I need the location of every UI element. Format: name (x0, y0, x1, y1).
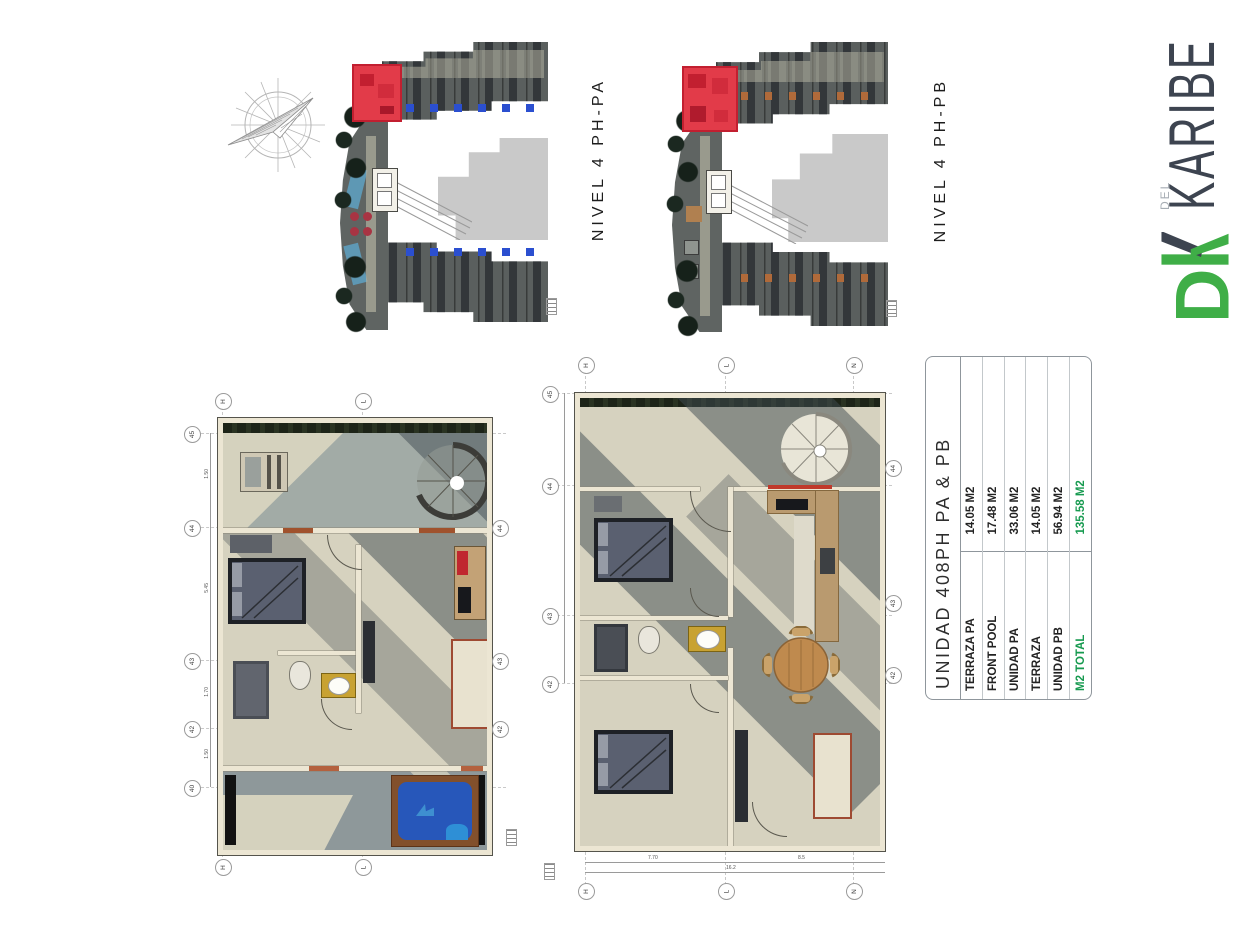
fridge (820, 548, 835, 574)
row-label: UNIDAD PA (1005, 552, 1026, 699)
terrace-pool (223, 771, 487, 850)
grid-bubble: 45 (542, 386, 559, 403)
logo-brand: KARIBE (1159, 38, 1224, 210)
grid-bubble: 42 (885, 667, 902, 684)
row-value: 56.94 M2 (1048, 357, 1069, 552)
bed (594, 730, 673, 794)
grid-bubble: L (355, 859, 372, 876)
terrace-pa (223, 433, 487, 528)
highlighted-unit (352, 64, 402, 122)
dim-label: 5.45 (204, 583, 210, 593)
site-plan-pa (340, 42, 568, 336)
table-row: TERRAZA PA 14.05 M2 (961, 357, 983, 699)
cooktop (776, 499, 808, 510)
scale-stamp (546, 298, 557, 315)
unit-pb-building (575, 393, 885, 851)
row-label: M2 TOTAL (1070, 552, 1091, 699)
door-swing (752, 802, 787, 837)
door-swing (321, 699, 352, 730)
dim-label: 7.70 (648, 855, 658, 861)
site-plan-pb-label: NIVEL 4 PH-PB (932, 78, 950, 242)
door-swing (327, 535, 362, 570)
ramp-lines (728, 174, 808, 244)
table-row: UNIDAD PA 33.06 M2 (1005, 357, 1027, 699)
bench (451, 639, 487, 729)
sofa (813, 733, 852, 819)
area-table-wrap: UNIDAD 408PH PA & PB TERRAZA PA 14.05 M2… (925, 358, 1090, 700)
row-value: 14.05 M2 (1026, 357, 1047, 552)
site-plan-pa-label: NIVEL 4 PH-PA (590, 78, 608, 241)
dim-label: 1.50 (204, 469, 210, 479)
grid-bubble: 44 (492, 520, 509, 537)
row-label: FRONT POOL (983, 552, 1004, 699)
elevator-core (372, 168, 398, 212)
closet (230, 535, 272, 553)
scale-stamp (886, 300, 897, 317)
compass-icon (218, 70, 333, 185)
ramp-lines (392, 170, 472, 240)
row-value: 135.58 M2 (1070, 357, 1091, 552)
grid-bubble: 40 (184, 780, 201, 797)
door-sill (283, 528, 313, 533)
row-value: 14.05 M2 (961, 357, 982, 552)
dim-label: 1.50 (204, 749, 210, 759)
planter-strip (225, 775, 236, 845)
bed (594, 518, 673, 582)
dim-label: 1.70 (204, 687, 210, 697)
tv-panel (363, 621, 375, 683)
grid-bubble: H (215, 393, 232, 410)
vanity (688, 626, 726, 652)
site-plan-pb (672, 42, 908, 336)
grid-bubble: L (355, 393, 372, 410)
row-label: TERRAZA (1026, 552, 1047, 699)
wardrobe (455, 547, 485, 619)
door-swing (690, 684, 719, 713)
grid-bubble: 44 (184, 520, 201, 537)
counter-inner (794, 516, 814, 634)
grid-bubble: 43 (492, 653, 509, 670)
grid-bubble: 43 (542, 608, 559, 625)
grid-bubble: L (718, 357, 735, 374)
accent-dots-top (724, 92, 882, 100)
toilet (289, 661, 311, 690)
grid-bubble: 44 (542, 478, 559, 495)
grid-bubble: H (215, 859, 232, 876)
dining-table (762, 626, 840, 704)
toilet (638, 626, 660, 654)
row-label: TERRAZA PA (961, 552, 982, 699)
table-row: FRONT POOL 17.48 M2 (983, 357, 1005, 699)
floor-plan-pb: H L N H L N 45 44 43 42 44 43 42 (530, 355, 902, 900)
table-row: TERRAZA 14.05 M2 (1026, 357, 1048, 699)
row-value: 17.48 M2 (983, 357, 1004, 552)
planter-band (223, 423, 487, 433)
grid-bubble: 42 (492, 721, 509, 738)
scale-stamp (544, 863, 555, 880)
pool-water (398, 782, 472, 840)
grid-bubble: 44 (885, 460, 902, 477)
door-sill (461, 766, 483, 771)
bed (228, 558, 306, 624)
pool-dots-top (390, 104, 540, 112)
grid-bubble: N (846, 883, 863, 900)
grid-bubble: H (578, 357, 595, 374)
tv-console (735, 730, 748, 822)
spiral-stair-icon (411, 439, 487, 523)
table-row-total: M2 TOTAL 135.58 M2 (1070, 357, 1091, 699)
grid-bubble: 43 (184, 653, 201, 670)
unit-pa-interior (223, 533, 487, 766)
spiral-stair-icon (776, 409, 856, 489)
architectural-sheet: NIVEL 4 PH-PA NIVEL 4 PH-PB (0, 0, 1260, 945)
brand-logo: D DEL KARIBE (1146, 33, 1238, 318)
unit-pa-building (218, 418, 492, 855)
row-value: 33.06 M2 (1005, 357, 1026, 552)
grid-bubble: H (578, 883, 595, 900)
highlighted-unit (682, 66, 738, 132)
row-label: UNIDAD PB (1048, 552, 1069, 699)
table-row: UNIDAD PB 56.94 M2 (1048, 357, 1070, 699)
bath-cabinet (594, 624, 628, 672)
grid-bubble: 42 (184, 721, 201, 738)
dim-label: 16.2 (726, 865, 736, 871)
door-sill (419, 528, 455, 533)
accent-dots-bottom (724, 274, 882, 282)
dim-label: 8.5 (798, 855, 805, 861)
grid-bubble: N (846, 357, 863, 374)
trees (664, 106, 704, 346)
floor-plan-pa: 1.50 5.45 1.70 1.50 H L H L 45 44 43 42 … (180, 393, 510, 875)
grid-bubble: 43 (885, 595, 902, 612)
svg-text:D: D (1161, 269, 1238, 318)
pool-dots-bottom (390, 248, 540, 256)
pool-deck (391, 775, 479, 847)
nightstand (594, 496, 622, 512)
area-table-title: UNIDAD 408PH PA & PB (926, 357, 961, 699)
desk (233, 661, 269, 719)
scale-stamp (506, 829, 517, 846)
grid-bubble: L (718, 883, 735, 900)
trees (332, 104, 372, 344)
terrace-table (241, 453, 287, 491)
dk-monogram-icon: D (1152, 232, 1238, 318)
vanity (321, 673, 356, 698)
unit-row-bottom (716, 240, 888, 326)
area-table: UNIDAD 408PH PA & PB TERRAZA PA 14.05 M2… (925, 356, 1092, 700)
elevator-core (706, 170, 732, 214)
door-sill (309, 766, 339, 771)
window-accent (768, 485, 832, 489)
grid-bubble: 42 (542, 676, 559, 693)
grid-bubble: 45 (184, 426, 201, 443)
